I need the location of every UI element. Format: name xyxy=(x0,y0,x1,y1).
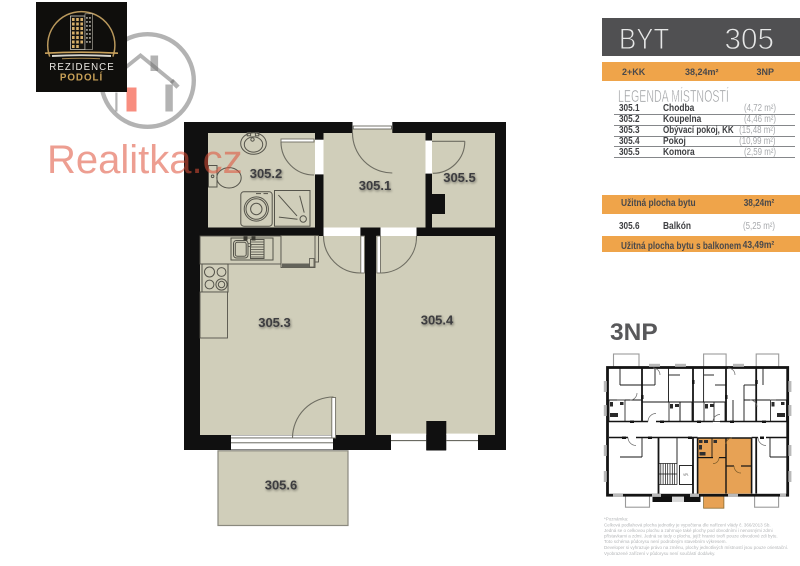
svg-text:Realitka.cz: Realitka.cz xyxy=(47,138,243,182)
svg-text:305.1: 305.1 xyxy=(359,178,392,193)
svg-text:VPl.: VPl. xyxy=(683,473,689,477)
svg-text:305.3: 305.3 xyxy=(258,315,291,330)
svg-text:305.2: 305.2 xyxy=(250,166,283,181)
svg-text:305.6: 305.6 xyxy=(265,477,298,492)
svg-text:305.5: 305.5 xyxy=(443,170,476,185)
svg-text:305.4: 305.4 xyxy=(421,313,454,328)
svg-text:PODOLÍ: PODOLÍ xyxy=(60,72,103,84)
svg-text:REZIDENCE: REZIDENCE xyxy=(49,62,114,73)
